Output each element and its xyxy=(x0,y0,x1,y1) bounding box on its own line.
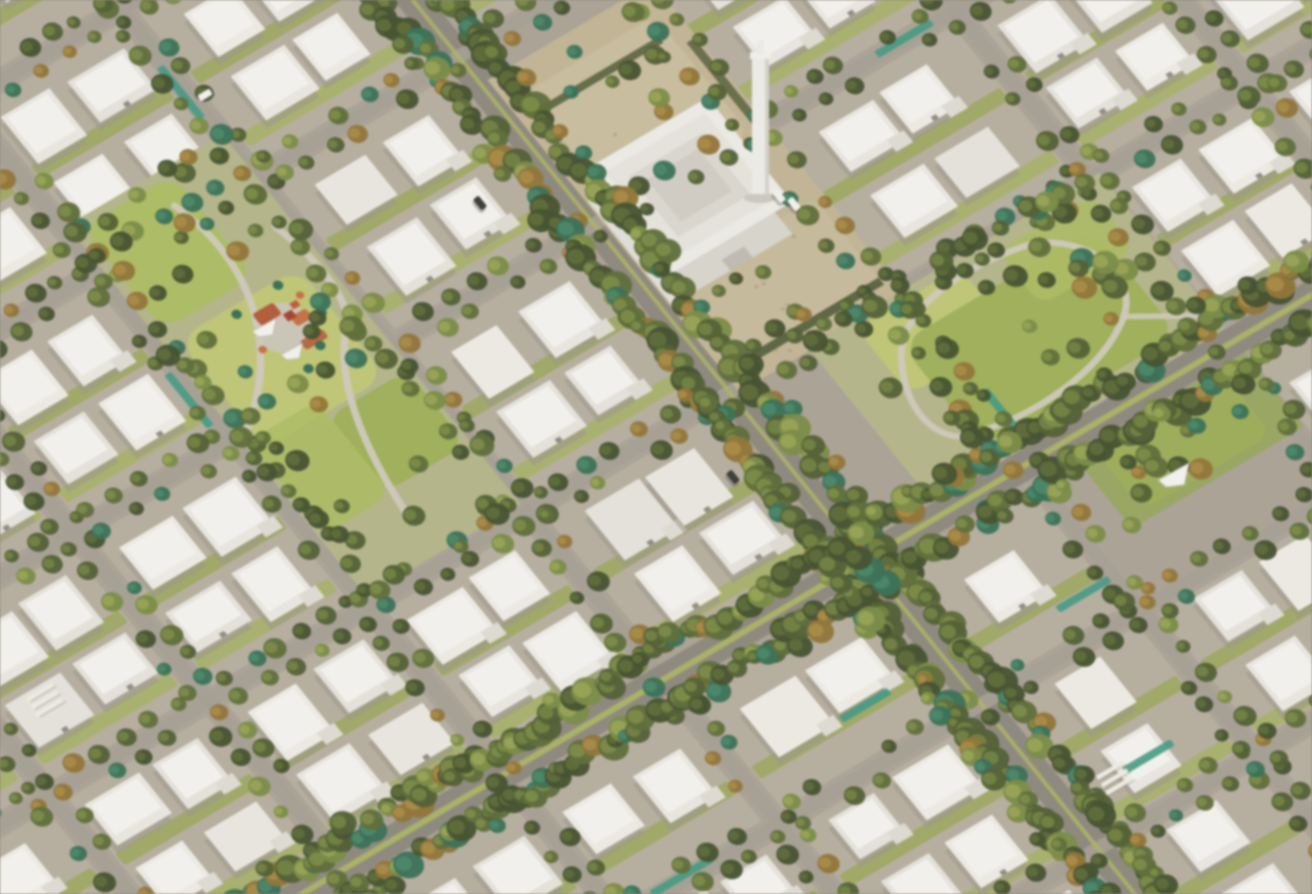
atmospheric-haze xyxy=(0,0,1312,894)
aerial-masterplan-page: Aerial 3D rendering of a residential vil… xyxy=(0,0,1312,894)
aerial-render xyxy=(0,0,1312,894)
overlay-layer xyxy=(0,0,1312,894)
aerial-masterplan-figure: Aerial 3D rendering of a residential vil… xyxy=(0,0,1312,894)
